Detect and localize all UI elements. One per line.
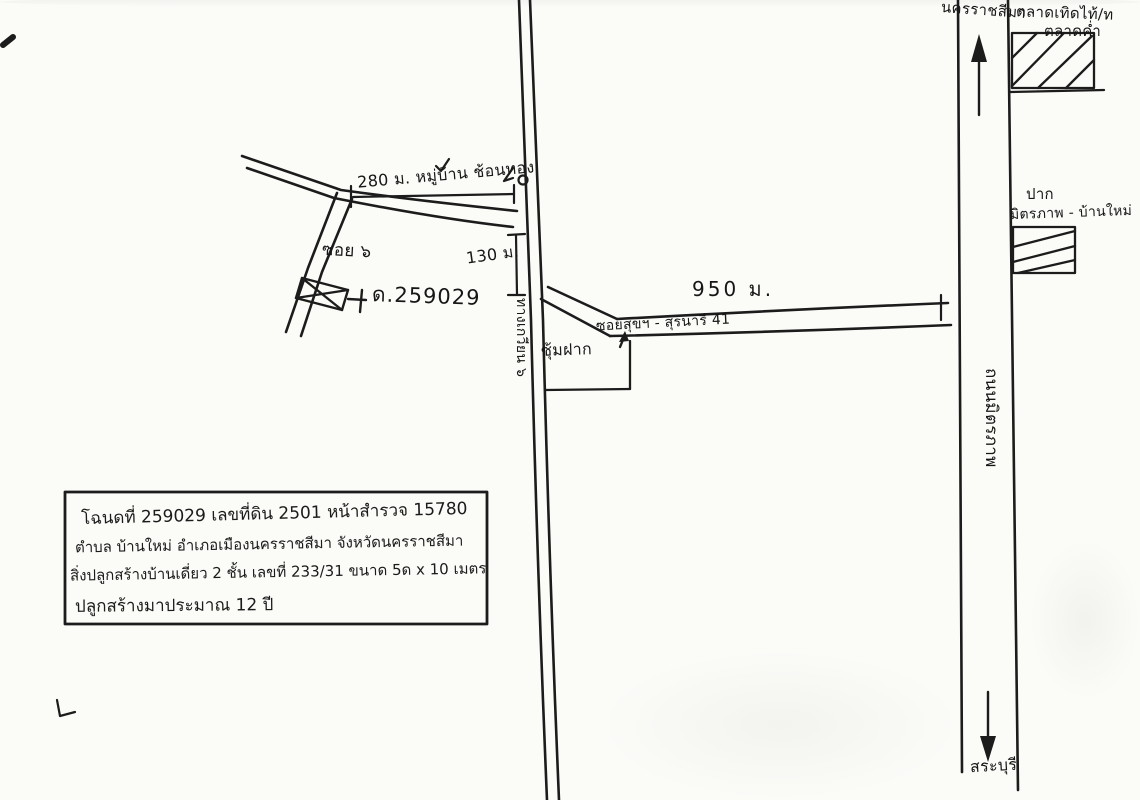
scanned-sketch-page: นครราชสีมา ตลาดเทิดไท้/ท ตลาดค่ำ ปาก มิต… (0, 0, 1140, 800)
road-soi-6 (286, 193, 352, 336)
shop-building-icon (1013, 227, 1075, 273)
label-south-city: สระบุรี (970, 756, 1018, 776)
deed-line-4: ปลูกสร้างมาประมาณ 12 ปี (75, 591, 274, 620)
label-market-line2: ตลาดค่ำ (1044, 23, 1101, 40)
label-soi6: ซอย ๖ (322, 241, 372, 262)
label-highway-name: ถนนมิตรภาพ (981, 368, 1000, 468)
label-dist-950: 950 ม. (692, 278, 774, 300)
deed-line-1: โฉนดที่ 259029 เลขที่ดิน 2501 หน้าสำรวจ … (81, 495, 468, 532)
label-pak: ปาก (1026, 186, 1054, 203)
road-main-vertical (519, 0, 559, 800)
deed-info-box: โฉนดที่ 259029 เลขที่ดิน 2501 หน้าสำรวจ … (65, 492, 487, 624)
south-arrow-icon (980, 692, 996, 762)
label-market-line1: ตลาดเทิดไท้/ท (1016, 3, 1114, 23)
deed-line-3: สิ่งปลูกสร้างบ้านเดี่ยว 2 ชั้น เลขที่ 23… (70, 556, 487, 587)
market-building-icon (1010, 33, 1104, 92)
deed-line-2: ตำบล บ้านใหม่ อำเภอเมืองนครราชสีมา จังหว… (75, 529, 464, 560)
label-side-road: ทางเกวียน ๖ (513, 298, 528, 377)
north-arrow-icon (971, 34, 987, 115)
parcel-marker-icon (296, 278, 366, 312)
label-parcel-no: ด.259029 (372, 283, 481, 310)
sketch-map-canvas (0, 0, 1140, 800)
label-gate-shop: ซุ้มฝาก (541, 340, 593, 359)
